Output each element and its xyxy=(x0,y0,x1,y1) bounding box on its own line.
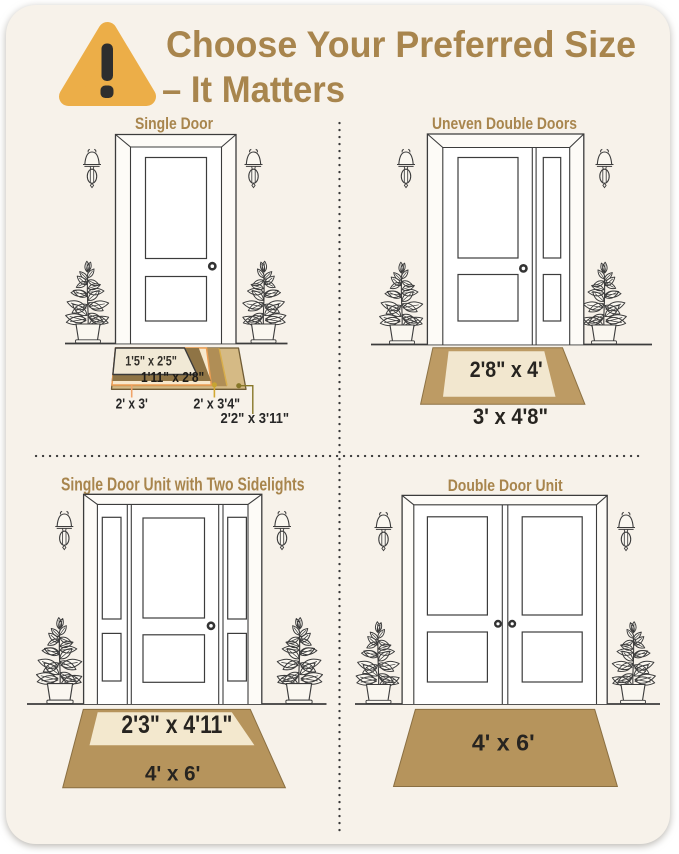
svg-text:3' x 4'8": 3' x 4'8" xyxy=(473,404,548,429)
svg-text:4' x 6': 4' x 6' xyxy=(145,763,200,786)
svg-text:Single Door: Single Door xyxy=(135,115,213,133)
svg-text:1'11" x 2'8": 1'11" x 2'8" xyxy=(141,369,204,386)
svg-text:Double Door Unit: Double Door Unit xyxy=(448,476,563,495)
svg-text:– It Matters: – It Matters xyxy=(162,69,345,110)
svg-text:1'5" x 2'5": 1'5" x 2'5" xyxy=(125,354,177,369)
svg-text:2' x 3': 2' x 3' xyxy=(116,396,148,413)
svg-text:Uneven Double Doors: Uneven Double Doors xyxy=(432,115,577,133)
svg-text:Single Door Unit with Two Side: Single Door Unit with Two Sidelights xyxy=(61,475,305,495)
svg-text:2'3" x 4'11": 2'3" x 4'11" xyxy=(121,711,232,739)
svg-text:2'8" x 4': 2'8" x 4' xyxy=(470,357,543,382)
svg-text:Choose Your Preferred Size: Choose Your Preferred Size xyxy=(166,24,636,65)
svg-text:2'2" x 3'11": 2'2" x 3'11" xyxy=(221,410,290,427)
svg-text:4' x 6': 4' x 6' xyxy=(472,730,535,756)
